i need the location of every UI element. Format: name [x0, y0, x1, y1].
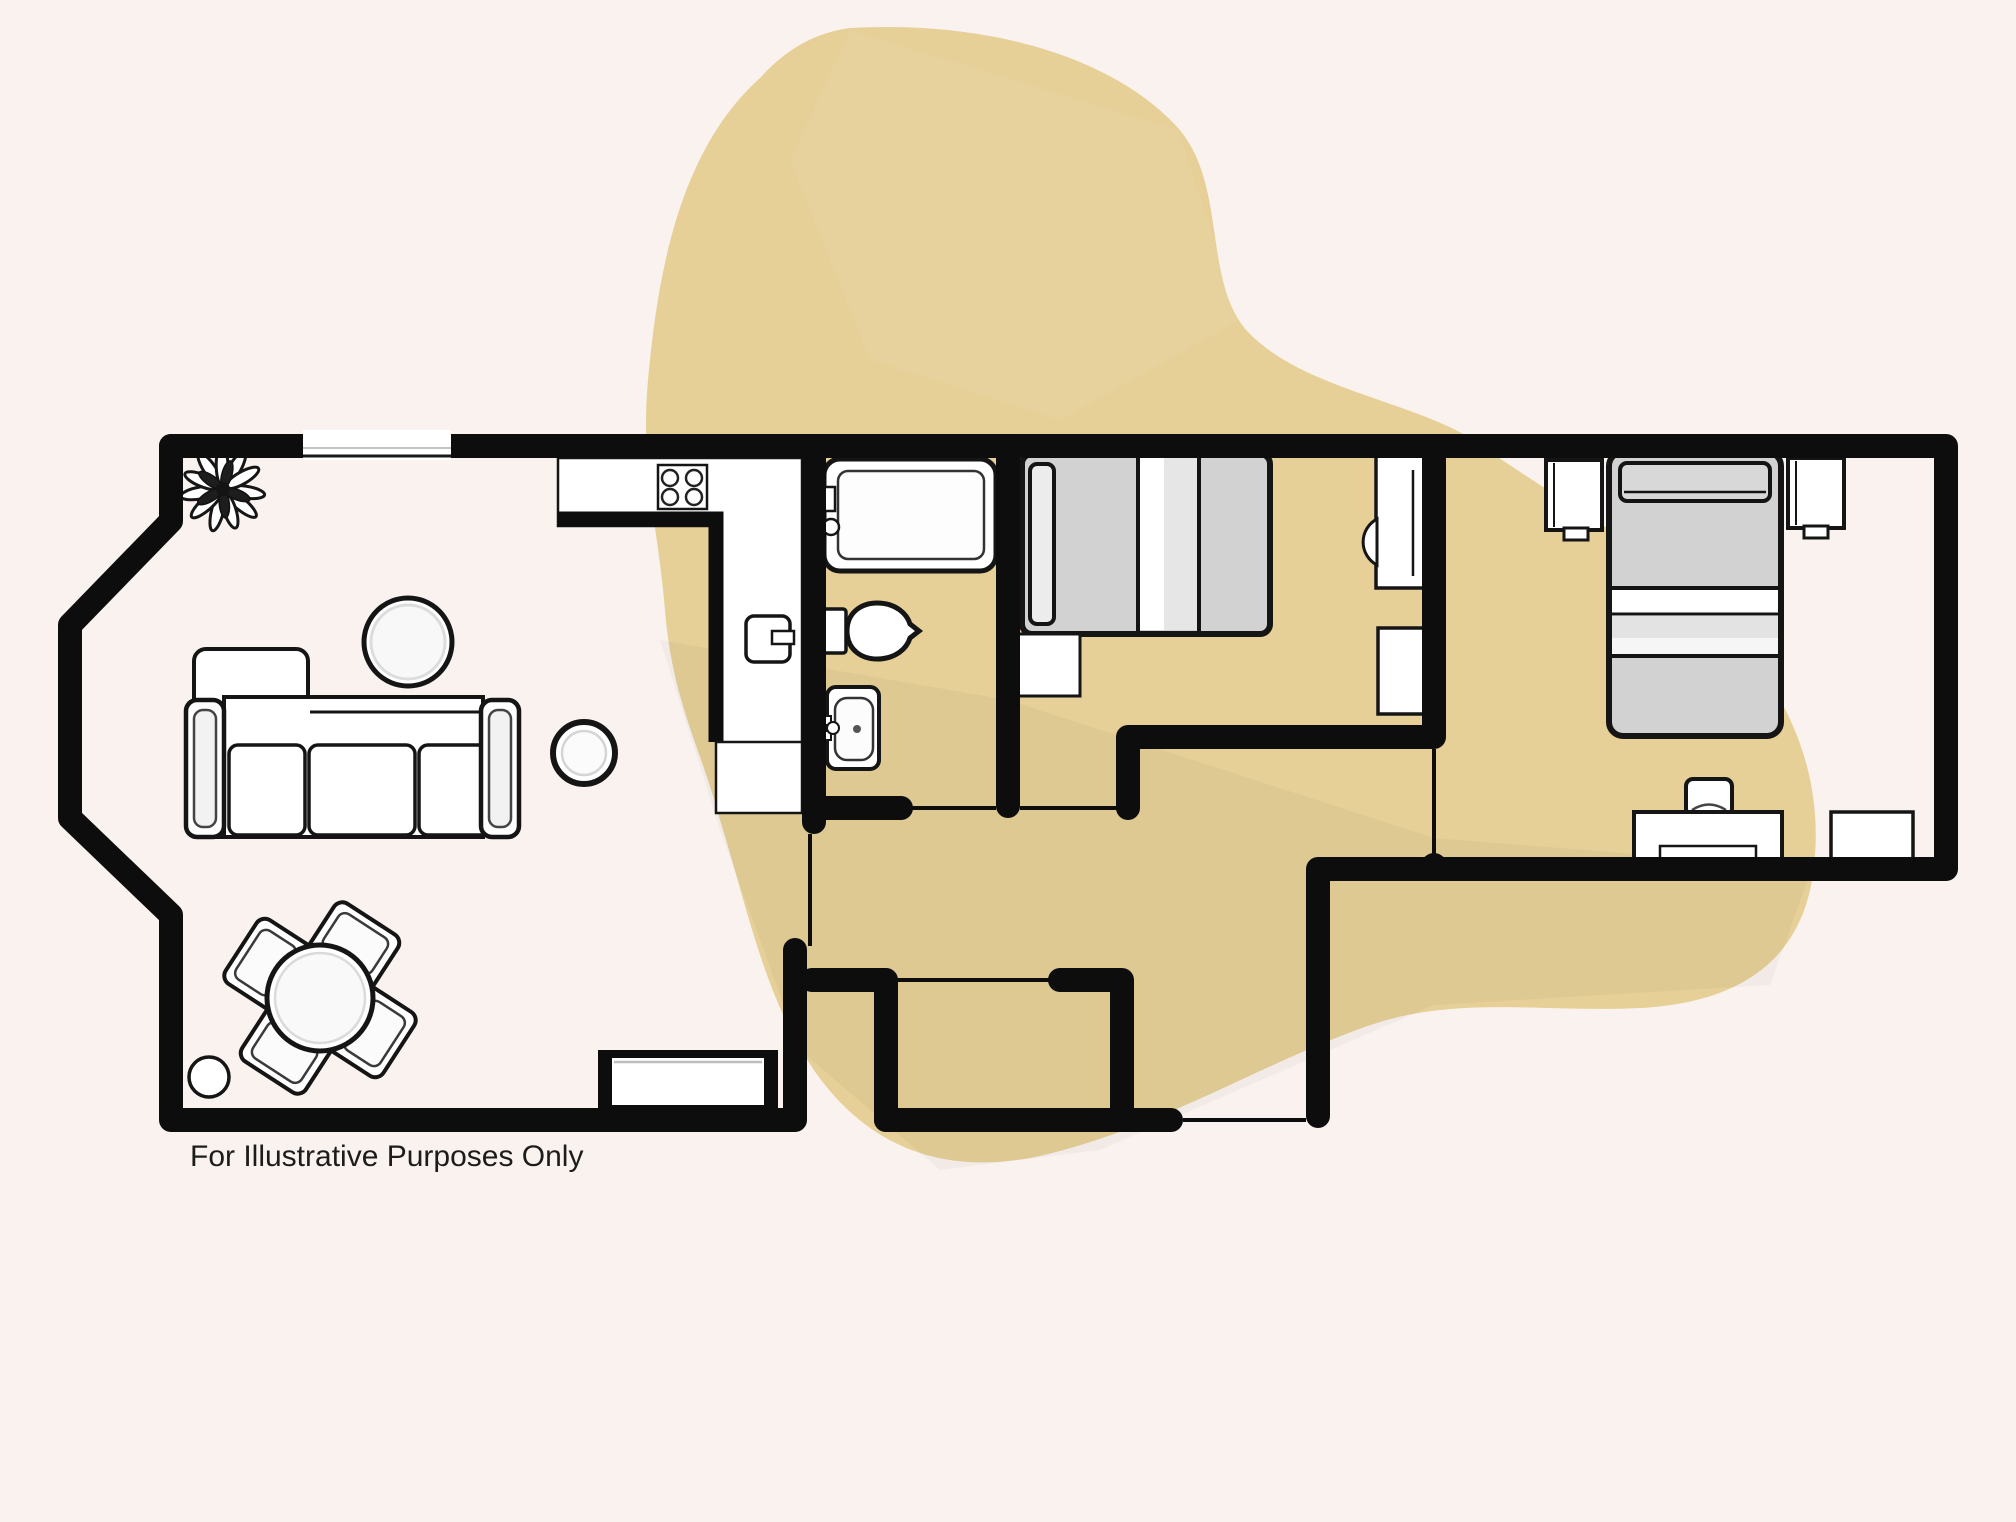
nightstand-right: [1788, 458, 1844, 538]
stove-icon: [658, 465, 707, 509]
cabinet: [1831, 812, 1913, 860]
kitchen-sink-icon: [746, 616, 794, 662]
floor-plan-page: For Illustrative Purposes Only: [0, 0, 2016, 1522]
bed-headboard: [1620, 463, 1770, 501]
coffee-table: [364, 598, 452, 686]
sofa-cushion: [229, 745, 305, 835]
sofa-cushion: [309, 745, 415, 835]
bottom-window-bay: [598, 1050, 778, 1110]
sofa-arm-right-inner: [489, 710, 511, 827]
bed-headboard: [1030, 464, 1054, 624]
bathroom-sink-icon: [819, 687, 879, 769]
side-table: [553, 722, 615, 784]
bed: [1022, 454, 1270, 634]
toilet-icon: [820, 603, 919, 659]
bedside-table: [1018, 634, 1080, 696]
bathtub-icon: [820, 459, 996, 571]
nightstand-left: [1546, 460, 1602, 540]
disclaimer-text: For Illustrative Purposes Only: [190, 1140, 583, 1173]
stool: [189, 1057, 229, 1097]
bed: [1609, 452, 1781, 736]
floor-plan-canvas: For Illustrative Purposes Only: [0, 0, 2016, 1522]
sofa-arm-left-inner: [194, 710, 216, 827]
top-window: [303, 430, 451, 460]
cabinet: [1378, 628, 1424, 714]
